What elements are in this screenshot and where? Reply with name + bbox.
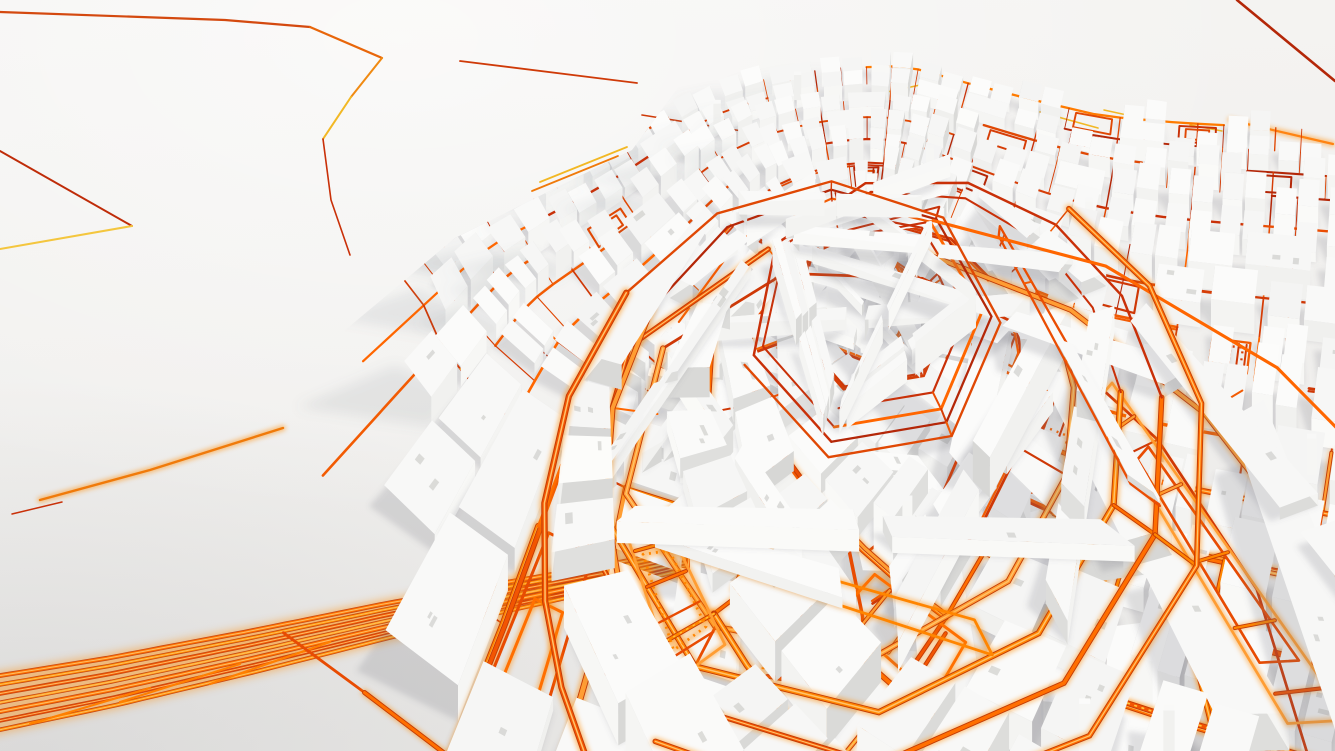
building (1278, 141, 1299, 172)
building (1249, 135, 1270, 170)
building (1307, 434, 1316, 475)
building (1304, 285, 1335, 344)
building (1298, 179, 1320, 229)
building (848, 117, 864, 163)
building (794, 71, 801, 100)
city-traffic-3d-visualization (0, 0, 1335, 751)
building (870, 128, 885, 163)
building (552, 498, 615, 582)
building (1163, 705, 1174, 751)
building (1211, 266, 1258, 335)
render-canvas (0, 0, 1335, 751)
